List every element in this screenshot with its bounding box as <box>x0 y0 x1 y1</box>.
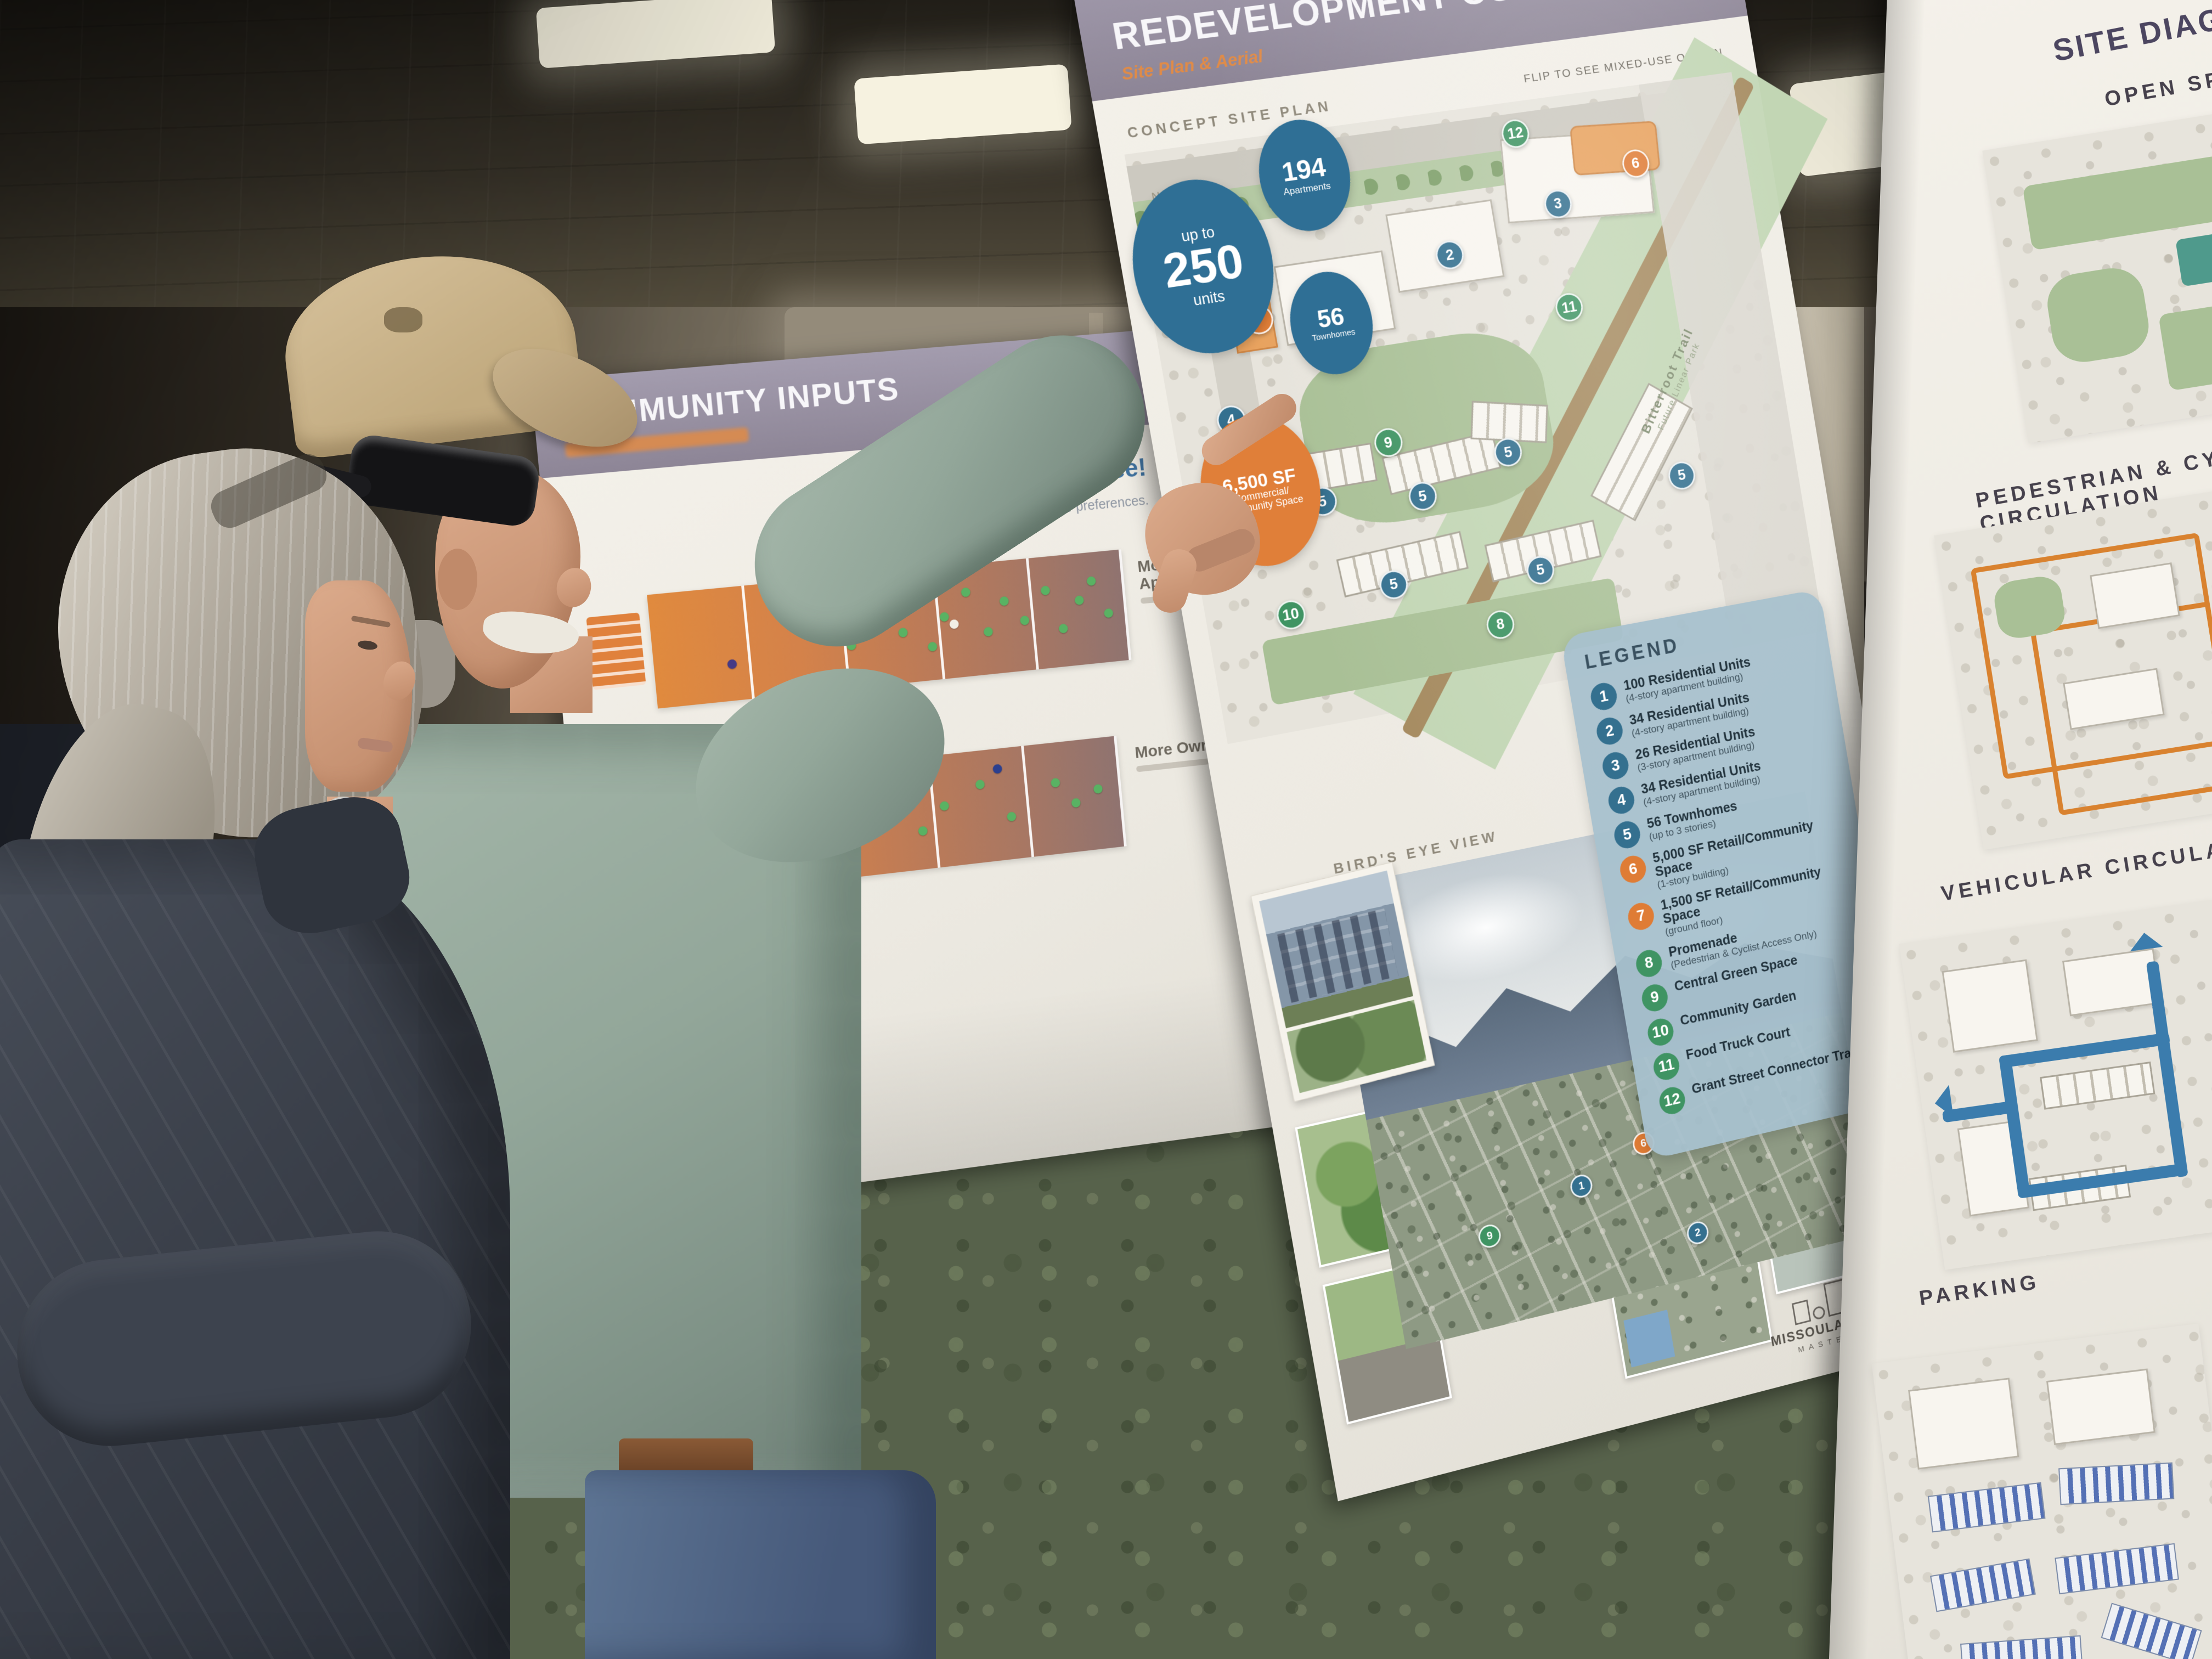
preference-dot <box>1020 615 1030 625</box>
preference-dot <box>1058 624 1068 634</box>
preference-dot <box>1104 608 1114 618</box>
legend-marker-12: 12 <box>1657 1085 1687 1117</box>
preference-dot <box>1093 784 1103 794</box>
parking-row <box>1930 1558 2036 1612</box>
stat-units-suffix: units <box>1192 289 1226 308</box>
map-marker-5: 5 <box>1406 480 1438 513</box>
legend-marker-6: 6 <box>1618 853 1648 885</box>
preference-dot <box>898 628 907 638</box>
section-vehicular-circulation: VEHICULAR CIRCULATION <box>1939 828 2212 906</box>
map-marker-5: 5 <box>1525 554 1556 586</box>
legend-marker-10: 10 <box>1646 1016 1675 1048</box>
map-marker-5: 5 <box>1378 568 1410 601</box>
poster-title: REDEVELOPMENT CONCEPT <box>1109 0 1638 58</box>
map-building <box>2046 1368 2155 1445</box>
preference-dot <box>928 641 938 652</box>
preference-dot <box>1051 777 1060 788</box>
stat-townhomes-label: Townhomes <box>1312 328 1356 343</box>
preference-dot <box>727 659 737 670</box>
legend-marker-1: 1 <box>1589 681 1619 713</box>
map-building <box>1942 959 2038 1052</box>
open-space-green <box>2043 264 2153 367</box>
open-space-green <box>2023 155 2212 251</box>
map-marker-5: 5 <box>1492 436 1524 469</box>
map-marker-11: 11 <box>1554 291 1585 324</box>
preference-dot <box>961 588 970 597</box>
legend-marker-5: 5 <box>1612 819 1643 851</box>
open-space-teal <box>2176 228 2212 286</box>
preference-dot <box>1074 595 1084 605</box>
man-jeans <box>585 1470 936 1659</box>
preference-dot <box>999 596 1009 606</box>
legend-list: 1100 Residential Units(4-story apartment… <box>1589 643 1882 1116</box>
map-marker-5: 5 <box>1666 459 1697 492</box>
vehicular-route <box>2146 961 2188 1177</box>
preference-dot <box>1007 811 1017 822</box>
section-open-space: OPEN SPACE <box>2103 58 2212 111</box>
preference-dot <box>950 619 960 629</box>
inset-building-image <box>1259 871 1413 1029</box>
vehicular-circulation-map <box>1899 900 2212 1270</box>
legend-marker-8: 8 <box>1634 947 1664 979</box>
preference-dot <box>918 826 928 837</box>
open-space-green <box>2158 297 2212 391</box>
preference-dot <box>992 764 1002 774</box>
map-marker-10: 10 <box>1274 598 1307 631</box>
vehicular-arrowhead <box>1916 1085 1954 1122</box>
man-ear <box>438 549 477 610</box>
preference-dot <box>1087 576 1097 586</box>
preference-dot <box>939 612 949 623</box>
map-marker-8: 8 <box>1485 608 1516 641</box>
vehicular-arrowhead <box>2125 914 2163 951</box>
stat-units-value: 250 <box>1160 236 1247 297</box>
legend-marker-3: 3 <box>1600 750 1630 782</box>
legend-marker-7: 7 <box>1626 900 1656 932</box>
map-marker-12: 12 <box>1499 117 1531 149</box>
preference-dot <box>1071 798 1081 808</box>
preference-dot <box>975 779 985 789</box>
preference-dot <box>983 627 993 636</box>
map-marker-2: 2 <box>1434 239 1466 271</box>
pedestrian-cyclist-map <box>1934 488 2212 850</box>
parking-row <box>2058 1463 2174 1505</box>
map-building <box>2062 948 2162 1016</box>
parking-map <box>1872 1324 2212 1659</box>
parking-row <box>2055 1543 2179 1594</box>
inset-windows <box>1277 909 1398 1003</box>
poster-corner-label: DRAFT <box>1623 0 1716 4</box>
cap-logo <box>384 307 422 332</box>
parking-row <box>1960 1635 2083 1659</box>
map-marker-9: 9 <box>1372 426 1404 459</box>
open-space-map <box>1982 106 2212 443</box>
map-marker-6: 6 <box>1620 148 1651 179</box>
poster-site-diagrams: SITE DIAGRAMS OPEN SPACE PEDESTRIAN & CY… <box>1826 0 2212 1659</box>
legend-marker-2: 2 <box>1595 715 1625 747</box>
preference-dot <box>1041 585 1051 595</box>
legend-marker-11: 11 <box>1651 1050 1681 1082</box>
parking-row <box>2101 1602 2202 1659</box>
section-parking: PARKING <box>1918 1271 2041 1311</box>
preference-dot <box>939 801 949 811</box>
blue-building <box>1624 1310 1675 1367</box>
map-building <box>1908 1378 2019 1470</box>
meeting-room-photo: 123456789101112 <box>0 0 2212 1659</box>
poster-title: SITE DIAGRAMS <box>2050 0 2212 69</box>
skyline-shape <box>1792 1300 1811 1325</box>
parking-row <box>1928 1482 2046 1533</box>
scale-left-caption <box>586 612 646 690</box>
legend-marker-9: 9 <box>1640 982 1669 1014</box>
map-marker-3: 3 <box>1542 188 1574 219</box>
map-townhomes <box>2040 1062 2155 1110</box>
skyline-shape <box>1812 1305 1826 1321</box>
legend-marker-4: 4 <box>1606 785 1637 816</box>
